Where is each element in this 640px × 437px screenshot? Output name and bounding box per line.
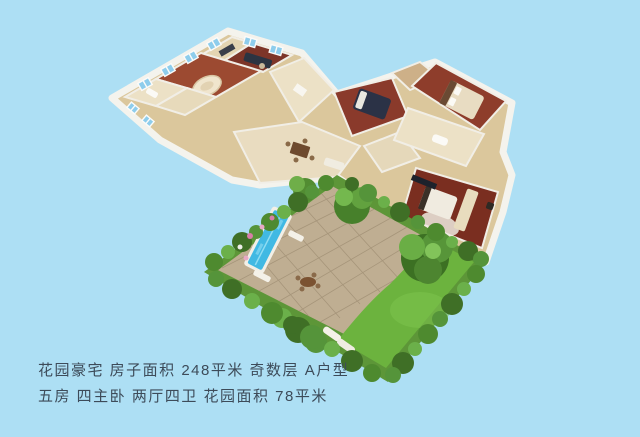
caption-line-2: 五房 四主卧 两厅四卫 花园面积 78平米 (38, 385, 328, 406)
dining-chair (294, 158, 299, 163)
screenshot: 花园豪宅 房子面积 248平米 奇数层 A户型 五房 四主卧 两厅四卫 花园面积… (0, 0, 640, 437)
coffee-table (259, 63, 265, 69)
caption-line-1: 花园豪宅 房子面积 248平米 奇数层 A户型 (38, 359, 349, 380)
dining-chair (310, 156, 315, 161)
dining-chair (286, 142, 291, 147)
dining-chair (303, 139, 308, 144)
